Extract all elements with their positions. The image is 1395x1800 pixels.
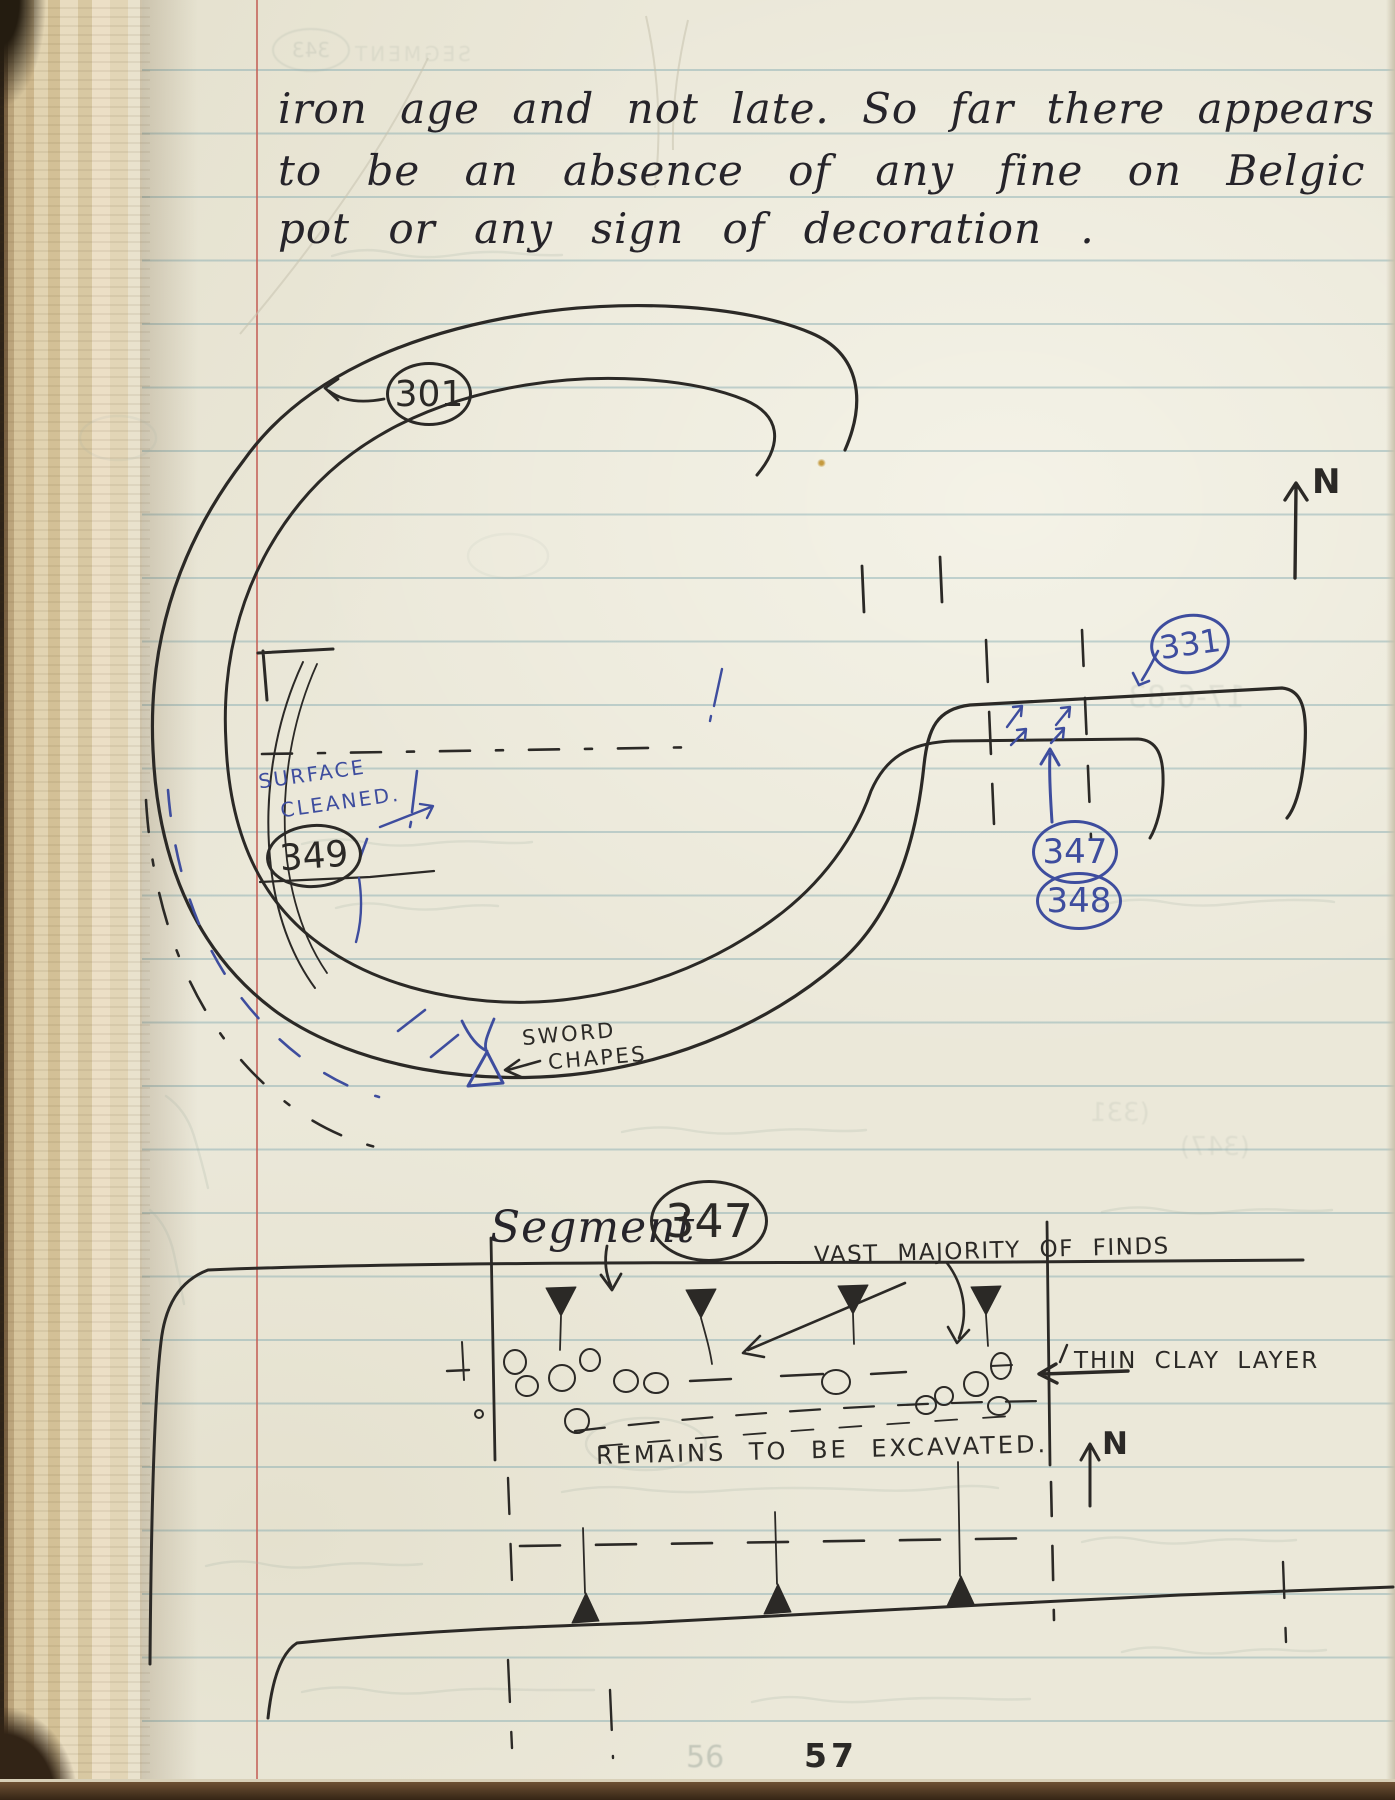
clay-note-tick xyxy=(1060,1345,1067,1362)
segment-heading-number: 347 xyxy=(665,1194,753,1248)
surface-strip-cap xyxy=(258,649,333,700)
ring-ditch-inner xyxy=(225,378,1163,1002)
find-circle xyxy=(580,1349,600,1371)
unexcavated-dash-col xyxy=(1283,1562,1286,1642)
surface-cleaned-arrow xyxy=(380,804,433,827)
blue-curve xyxy=(356,878,361,942)
find-circle xyxy=(822,1370,850,1394)
ghost-line xyxy=(1102,1207,1332,1213)
context-label-348-number: 348 xyxy=(1047,881,1112,921)
peg-marker-tail xyxy=(560,1316,561,1350)
terminal-dashed-boundary xyxy=(986,640,994,824)
ghost-line xyxy=(562,1486,998,1492)
floating-dashes xyxy=(862,557,942,612)
terminal-blue-arrow xyxy=(1011,729,1026,745)
ghost-oval-mark xyxy=(468,534,548,578)
terminal-dashed-boundary xyxy=(1082,630,1091,838)
terminal-blue-arrow xyxy=(1056,707,1070,725)
north-arrow-icon xyxy=(1081,1444,1099,1506)
section-right-dashes xyxy=(1051,1482,1054,1620)
unexcavated-dash-col xyxy=(610,1690,613,1758)
finds-row-tick xyxy=(462,1342,464,1380)
find-circles xyxy=(475,1349,1012,1433)
blue-exclamation xyxy=(410,771,417,827)
clay-note: THIN CLAY LAYER xyxy=(1074,1348,1319,1374)
find-circle-crossbar xyxy=(991,1365,1012,1366)
clay-dash-line xyxy=(575,1401,1050,1431)
ghost-line xyxy=(166,1096,208,1188)
context-label-349-number: 349 xyxy=(278,833,349,879)
peg-marker xyxy=(686,1289,716,1318)
ghost-line xyxy=(752,1697,1030,1702)
notebook-page: SEGMENT 343 17-6-83 (331 (347) 56 xyxy=(0,0,1395,1800)
interior-dash-line xyxy=(262,747,706,754)
ghost-oval-mark xyxy=(80,416,156,460)
handwriting-line-2: to be an absence of any fine on Belgic xyxy=(278,146,1365,195)
ring-ditch-outer xyxy=(152,306,1305,1078)
find-circle xyxy=(516,1376,538,1396)
ghost-line xyxy=(206,1561,422,1567)
find-circle xyxy=(614,1370,638,1392)
ghost-line xyxy=(1098,900,1334,906)
unexcavated-dash-left xyxy=(508,1478,512,1582)
peg-marker xyxy=(947,1576,974,1606)
peg-marker-tail xyxy=(853,1314,854,1344)
terminal-blue-arrow xyxy=(1007,706,1022,727)
north-label-bottom: N xyxy=(1102,1426,1128,1462)
unexcavated-dash-bottom xyxy=(520,1538,1042,1546)
finds-row-dashes xyxy=(447,1370,906,1381)
peg-marker-tail xyxy=(701,1318,712,1364)
label-347-arrow xyxy=(1041,749,1059,822)
sword-chape-mark xyxy=(462,1019,494,1052)
find-circle xyxy=(935,1387,953,1405)
find-circle xyxy=(475,1410,483,1418)
peg-marker xyxy=(971,1286,1001,1315)
find-circle xyxy=(644,1373,668,1393)
ghost-line xyxy=(1082,1537,1296,1543)
find-circle xyxy=(504,1350,526,1374)
context-label-347-number: 347 xyxy=(1043,832,1108,872)
find-circle xyxy=(988,1397,1010,1415)
ghost-line xyxy=(622,1127,866,1133)
peg-marker-tail xyxy=(986,1315,988,1346)
peg-marker xyxy=(572,1593,599,1623)
section-left-tick xyxy=(491,1238,495,1460)
context-label-301: 301 xyxy=(386,362,472,426)
sketch-layer xyxy=(0,0,1395,1800)
context-label-348: 348 xyxy=(1036,872,1122,930)
ghost-squiggles xyxy=(80,250,1334,1702)
sword-chapes-arrow xyxy=(505,1060,540,1077)
peg-marker xyxy=(546,1287,576,1316)
find-circle xyxy=(964,1372,988,1396)
finds-hook-arrow xyxy=(947,1263,969,1343)
page-number: 57 xyxy=(804,1736,858,1775)
peg-marker-tail xyxy=(775,1512,777,1584)
ghost-line xyxy=(302,1687,594,1693)
blue-diagonal-dashes xyxy=(398,1010,458,1057)
unexcavated-dash-col xyxy=(508,1660,512,1748)
blue-exclamation xyxy=(710,669,722,721)
handwriting-line-3: pot or any sign of decoration . xyxy=(278,204,1095,253)
finds-note-arrow xyxy=(743,1283,905,1357)
context-label-301-number: 301 xyxy=(395,374,464,415)
north-arrow-icon xyxy=(1285,483,1307,578)
sword-chape-triangle xyxy=(468,1052,503,1086)
handwriting-line-1: iron age and not late. So far there appe… xyxy=(278,84,1375,133)
label-301-arrow xyxy=(325,379,384,401)
segment-heading-label-347: 347 xyxy=(650,1180,768,1262)
find-circle xyxy=(549,1365,575,1391)
peg-marker-tail xyxy=(583,1528,585,1593)
peg-marker xyxy=(764,1584,791,1614)
ghost-line xyxy=(1122,1647,1326,1653)
context-label-331-number: 331 xyxy=(1157,621,1223,667)
north-label-top: N xyxy=(1312,462,1340,502)
peg-marker-tail xyxy=(958,1462,960,1576)
